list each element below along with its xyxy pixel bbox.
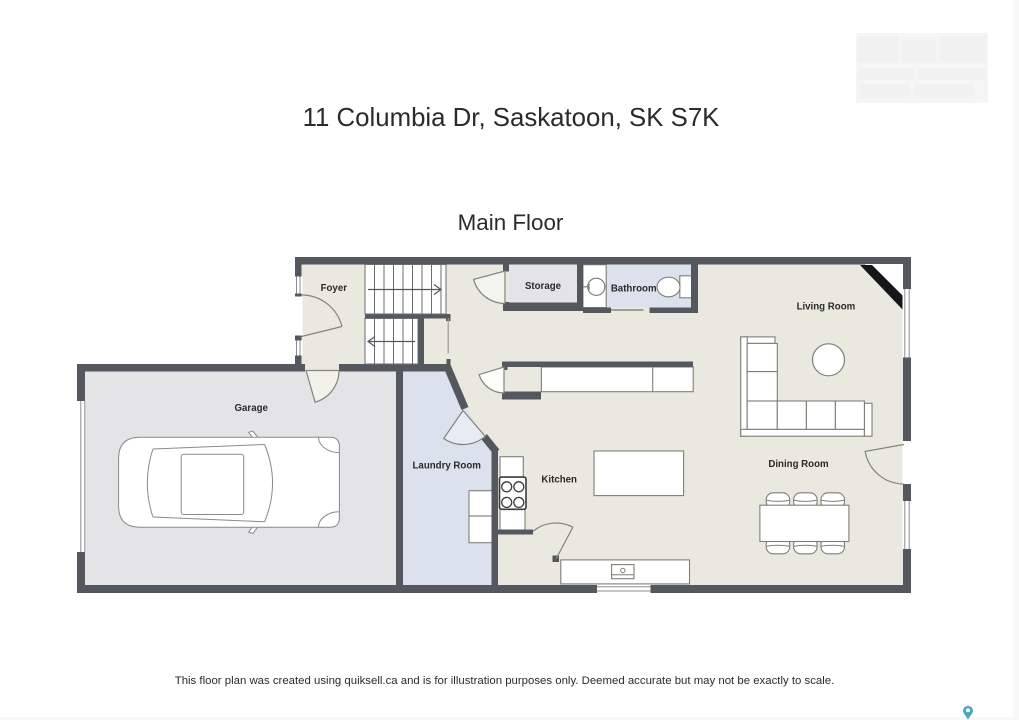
svg-text:11 Columbia Dr, Saskatoon, SK: 11 Columbia Dr, Saskatoon, SK S7K — [303, 104, 720, 132]
svg-text:Bathroom: Bathroom — [611, 284, 657, 295]
svg-text:Main Floor: Main Floor — [458, 210, 564, 235]
svg-text:Dining Room: Dining Room — [768, 459, 829, 470]
svg-text:Garage: Garage — [235, 403, 269, 414]
svg-text:Kitchen: Kitchen — [541, 475, 577, 486]
svg-text:Foyer: Foyer — [321, 283, 348, 294]
svg-text:Laundry Room: Laundry Room — [413, 460, 482, 471]
svg-text:Storage: Storage — [525, 281, 562, 292]
svg-text:This floor plan was created us: This floor plan was created using quikse… — [175, 675, 835, 687]
svg-text:Living Room: Living Room — [797, 302, 856, 313]
